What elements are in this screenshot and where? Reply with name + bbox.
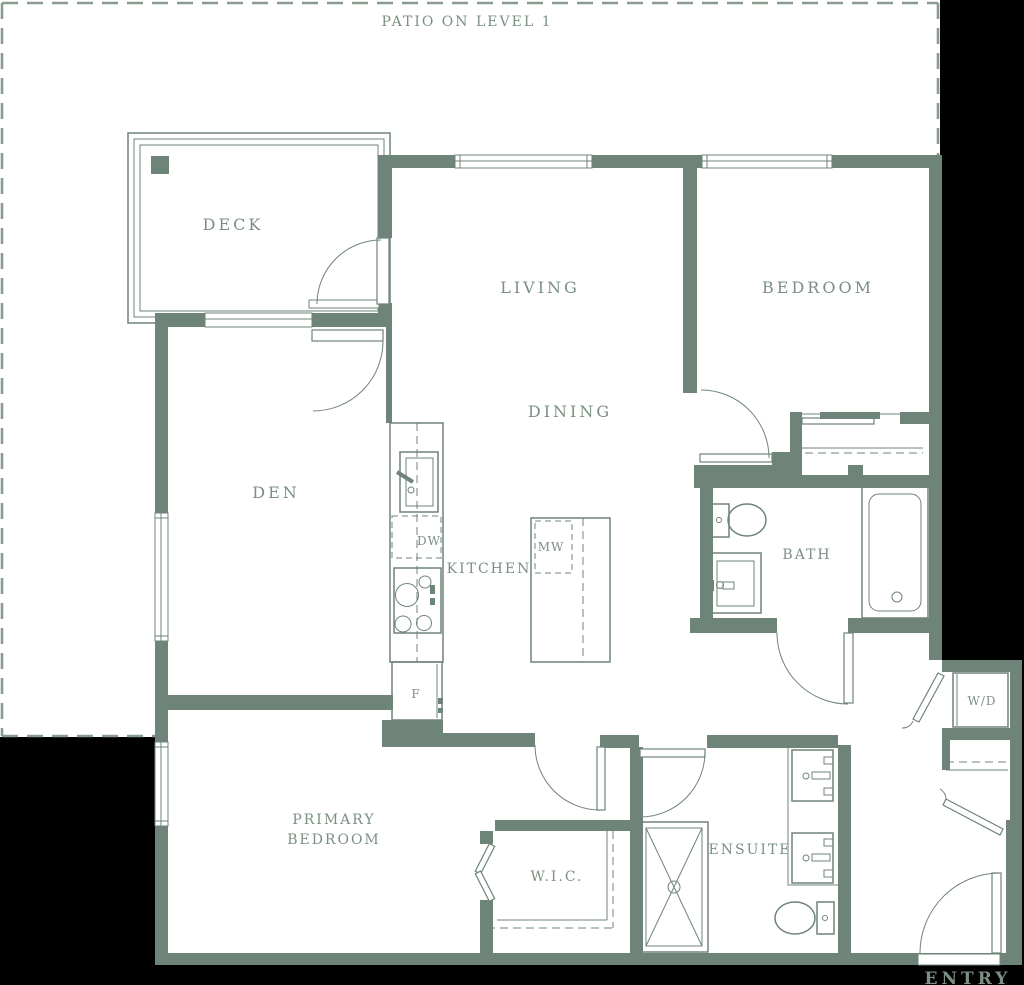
dining-label: DINING <box>528 402 612 421</box>
dishwasher-label: DW <box>417 534 441 548</box>
deck-label: DECK <box>203 215 264 234</box>
den-side-window <box>155 513 168 641</box>
deck-post <box>151 156 169 174</box>
living-label: LIVING <box>500 278 580 297</box>
den-label: DEN <box>252 483 300 502</box>
floor-plan-page: PATIO ON LEVEL 1 DECK LIVING BEDROOM DEN… <box>0 0 1024 985</box>
patio-label: PATIO ON LEVEL 1 <box>382 14 553 30</box>
floor-plan-svg: PATIO ON LEVEL 1 DECK LIVING BEDROOM DEN… <box>0 0 1024 985</box>
wic-label: W.I.C. <box>530 869 583 885</box>
microwave-label: MW <box>538 540 565 554</box>
fridge-label: F <box>411 687 420 701</box>
kitchen-label: KITCHEN <box>447 561 532 577</box>
bath-label: BATH <box>782 547 831 563</box>
washer-dryer-label: W/D <box>968 694 997 708</box>
bedroom-label: BEDROOM <box>762 278 874 297</box>
living-window <box>455 155 592 168</box>
primary-bedroom-label-line1: PRIMARY <box>292 812 375 828</box>
ensuite-label: ENSUITE <box>709 842 792 858</box>
den-deck-window <box>205 313 312 327</box>
primary-bedroom-window <box>155 742 168 826</box>
entry-label: ENTRY <box>925 969 1012 985</box>
bedroom-window <box>702 155 832 168</box>
primary-bedroom-label-line2: BEDROOM <box>287 832 381 848</box>
